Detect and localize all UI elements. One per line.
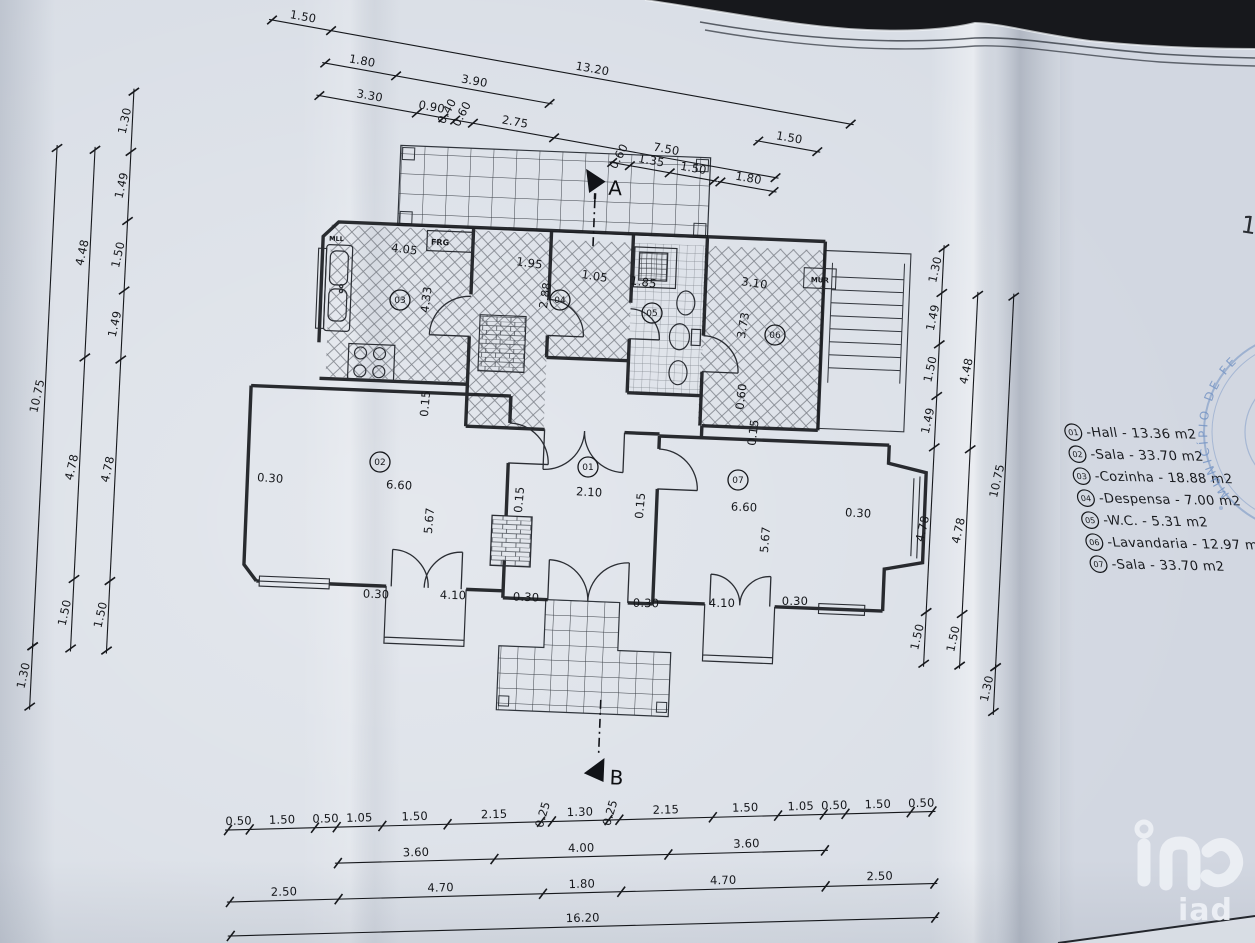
- section-letter-b: B: [609, 765, 624, 790]
- blueprint-photo: MLL FRG MUR A B 1.5013.201.803.901.503.3…: [0, 0, 1255, 943]
- svg-text:03: 03: [394, 296, 405, 306]
- dimension-label: 4.00: [568, 840, 595, 855]
- paper-bottom-shade: [0, 860, 1255, 943]
- dimension-label: 1.50: [269, 812, 296, 827]
- svg-text:-W.C. - 5.31 m2: -W.C. - 5.31 m2: [1102, 514, 1209, 531]
- svg-text:05: 05: [646, 309, 657, 319]
- dimension-label: 0.50: [312, 811, 339, 826]
- svg-text:04: 04: [1080, 493, 1092, 503]
- dimension-label: 1.50: [732, 800, 759, 815]
- interior-dimension-label: 0.15: [632, 492, 648, 520]
- svg-text:03: 03: [1076, 471, 1088, 481]
- section-letter-a: A: [608, 176, 623, 201]
- dimension-label: 0.50: [821, 798, 848, 813]
- interior-dimension-label: 4.10: [440, 588, 467, 602]
- paper-fold-left: [300, 0, 400, 943]
- svg-text:07: 07: [1093, 559, 1105, 569]
- wall-label: MUR: [811, 276, 830, 285]
- interior-dimension-label: 0.15: [417, 390, 433, 418]
- interior-dimension-label: 0.30: [257, 470, 284, 486]
- dimension-label: 3.60: [733, 836, 760, 851]
- fridge-label: FRG: [431, 238, 450, 248]
- svg-text:02: 02: [374, 458, 385, 468]
- interior-dimension-label: 5.67: [757, 526, 773, 554]
- interior-dimension-label: 5.67: [421, 507, 437, 535]
- interior-dimension-label: 0.30: [633, 596, 660, 610]
- svg-text:-Sala - 33.70 m2: -Sala - 33.70 m2: [1110, 558, 1226, 575]
- dimension-label: 1.05: [787, 799, 814, 814]
- svg-text:01: 01: [582, 463, 593, 473]
- blueprint-svg: MLL FRG MUR A B 1.5013.201.803.901.503.3…: [0, 0, 1255, 943]
- svg-text:06: 06: [1088, 537, 1100, 547]
- dimension-label: 1.50: [864, 797, 891, 812]
- interior-dimension-label: 2.10: [576, 484, 603, 499]
- svg-text:05: 05: [1084, 515, 1096, 525]
- interior-dimension-label: 0.30: [845, 505, 872, 520]
- dimension-label: 4.70: [710, 873, 737, 888]
- svg-text:02: 02: [1071, 449, 1083, 459]
- interior-dimension-label: 6.60: [731, 500, 758, 515]
- dimension-label: 0.50: [908, 795, 935, 810]
- closet: [478, 315, 526, 373]
- svg-text:04: 04: [554, 296, 566, 306]
- svg-text:-Sala - 33.70 m2: -Sala - 33.70 m2: [1089, 448, 1205, 465]
- paper-left-shade: [0, 0, 55, 943]
- dimension-label: 3.60: [403, 845, 430, 860]
- dimension-label: 16.20: [566, 910, 600, 925]
- dimension-label: 1.05: [346, 810, 373, 825]
- interior-dimension-label: 0.30: [513, 590, 540, 605]
- dimension-label: 4.70: [427, 880, 454, 895]
- dimension-label: 0.50: [225, 813, 252, 828]
- sink-label: MLL: [329, 235, 344, 244]
- dimension-label: 1.50: [401, 809, 428, 824]
- svg-text:07: 07: [732, 476, 743, 486]
- dimension-label: 2.50: [866, 869, 893, 884]
- interior-dimension-label: 0.30: [782, 594, 808, 608]
- interior-dimension-label: 4.10: [709, 596, 735, 610]
- interior-dimension-label: 0.30: [363, 587, 390, 602]
- fireplace: [490, 515, 532, 567]
- dimension-label: 2.50: [271, 884, 298, 899]
- dimension-label: 1.30: [567, 804, 594, 819]
- interior-dimension-label: 6.60: [386, 477, 413, 492]
- svg-text:06: 06: [769, 331, 781, 341]
- iad-watermark-text: iad: [1178, 893, 1233, 928]
- interior-dimension-label: 0.15: [511, 486, 527, 514]
- dimension-label: 2.15: [481, 807, 508, 822]
- svg-text:01: 01: [1067, 427, 1079, 437]
- svg-text:-Hall - 13.36 m2: -Hall - 13.36 m2: [1085, 426, 1198, 443]
- dimension-label: 2.15: [652, 802, 679, 817]
- dimension-label: 1.80: [568, 876, 595, 891]
